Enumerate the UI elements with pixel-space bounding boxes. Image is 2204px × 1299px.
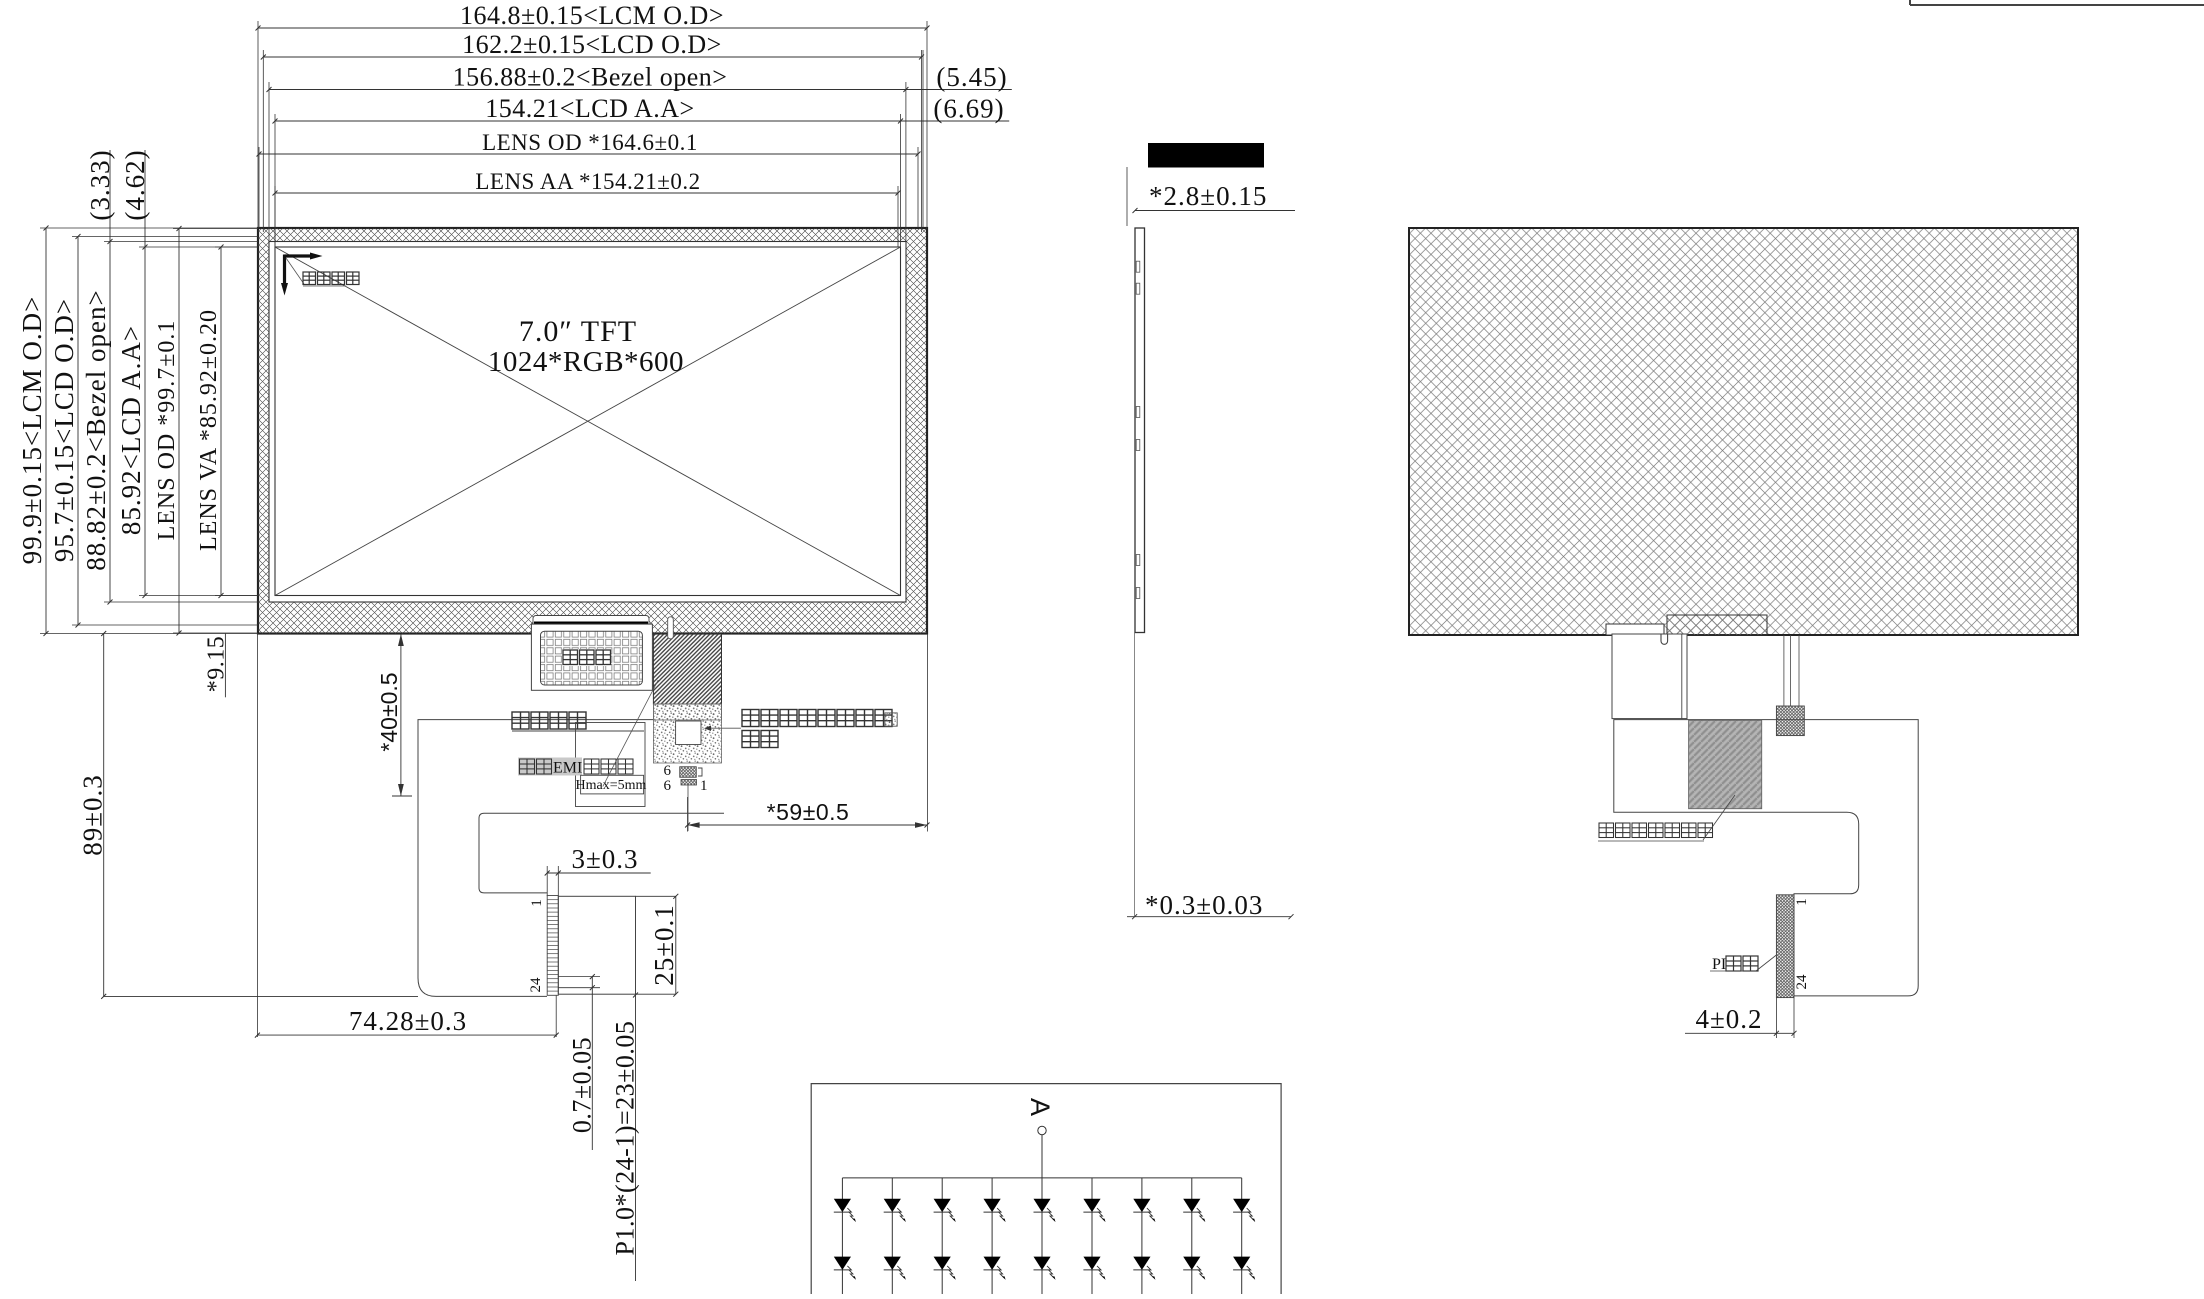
svg-text:154.21<LCD A.A>: 154.21<LCD A.A> — [485, 94, 694, 123]
svg-text:24: 24 — [1794, 974, 1810, 990]
svg-text:A: A — [1025, 1098, 1055, 1116]
svg-text:*40±0.5: *40±0.5 — [376, 672, 402, 751]
svg-text:1: 1 — [1794, 898, 1810, 906]
svg-text:3±0.3: 3±0.3 — [571, 844, 638, 874]
svg-text:LENS AA *154.21±0.2: LENS AA *154.21±0.2 — [475, 169, 700, 194]
svg-text:25±0.1: 25±0.1 — [649, 904, 679, 986]
svg-text:EMI: EMI — [553, 760, 582, 777]
svg-text:85.92<LCD A.A>: 85.92<LCD A.A> — [116, 325, 146, 535]
svg-text:6: 6 — [664, 763, 672, 779]
svg-text:88.82±0.2<Bezel open>: 88.82±0.2<Bezel open> — [81, 289, 111, 570]
svg-text:(6.69): (6.69) — [933, 94, 1004, 124]
svg-text:7.0″ TFT: 7.0″ TFT — [519, 315, 637, 348]
svg-text:89±0.3: 89±0.3 — [78, 774, 108, 856]
svg-text:24: 24 — [528, 977, 544, 993]
svg-text:162.2±0.15<LCD O.D>: 162.2±0.15<LCD O.D> — [462, 30, 722, 59]
svg-text:156.88±0.2<Bezel open>: 156.88±0.2<Bezel open> — [453, 63, 728, 92]
svg-text:*2.8±0.15: *2.8±0.15 — [1149, 181, 1267, 211]
svg-text:1: 1 — [700, 778, 708, 794]
svg-text:(5.45): (5.45) — [936, 62, 1007, 92]
svg-text:74.28±0.3: 74.28±0.3 — [349, 1006, 467, 1036]
svg-text:99.9±0.15<LCM O.D>: 99.9±0.15<LCM O.D> — [17, 296, 47, 565]
svg-text:1: 1 — [529, 899, 545, 907]
svg-text:*59±0.5: *59±0.5 — [767, 799, 850, 825]
svg-text:*9.15: *9.15 — [204, 636, 230, 693]
svg-text:Hmax=5mm: Hmax=5mm — [576, 778, 647, 793]
svg-text:LENS OD *99.7±0.1: LENS OD *99.7±0.1 — [154, 320, 180, 541]
svg-text:P1.0*(24-1)=23±0.05: P1.0*(24-1)=23±0.05 — [611, 1021, 640, 1256]
svg-text:4±0.2: 4±0.2 — [1695, 1004, 1762, 1034]
svg-text:(3.33): (3.33) — [85, 149, 115, 220]
svg-text:LENS VA *85.92±0.20: LENS VA *85.92±0.20 — [196, 309, 222, 551]
svg-text:*0.3±0.03: *0.3±0.03 — [1145, 890, 1263, 920]
svg-text:95.7±0.15<LCD O.D>: 95.7±0.15<LCD O.D> — [49, 298, 79, 562]
svg-text:164.8±0.15<LCM O.D>: 164.8±0.15<LCM O.D> — [460, 1, 724, 30]
svg-text:1024*RGB*600: 1024*RGB*600 — [488, 346, 684, 378]
svg-text:(4.62): (4.62) — [120, 149, 150, 220]
svg-text:PI: PI — [1712, 956, 1726, 973]
svg-text:6: 6 — [664, 778, 672, 794]
svg-text:0.7±0.05: 0.7±0.05 — [568, 1037, 597, 1133]
svg-text:LENS OD *164.6±0.1: LENS OD *164.6±0.1 — [482, 130, 698, 155]
